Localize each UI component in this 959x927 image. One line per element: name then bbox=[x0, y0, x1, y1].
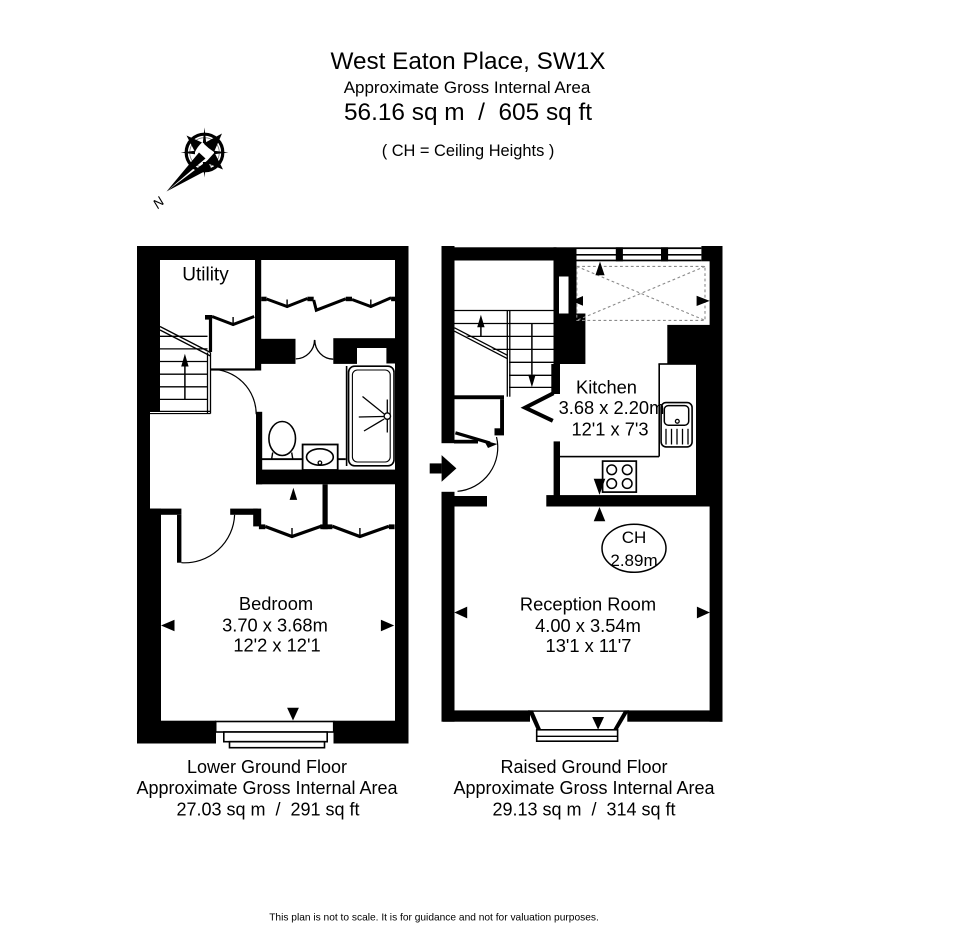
svg-text:3.68 x 2.20m: 3.68 x 2.20m bbox=[559, 397, 665, 418]
svg-text:29.13 sq m / 314 sq ft: 29.13 sq m / 314 sq ft bbox=[492, 800, 675, 820]
svg-text:Approximate Gross Internal Are: Approximate Gross Internal Area bbox=[344, 78, 591, 97]
svg-text:12'2 x 12'1: 12'2 x 12'1 bbox=[233, 635, 320, 656]
svg-text:CH: CH bbox=[622, 528, 647, 547]
svg-text:4.00 x 3.54m: 4.00 x 3.54m bbox=[535, 615, 641, 636]
svg-text:Kitchen: Kitchen bbox=[576, 377, 637, 398]
svg-text:12'1 x 7'3: 12'1 x 7'3 bbox=[571, 419, 648, 440]
svg-text:Approximate Gross Internal Are: Approximate Gross Internal Area bbox=[136, 778, 398, 798]
svg-text:Approximate Gross Internal Are: Approximate Gross Internal Area bbox=[453, 778, 715, 798]
svg-text:27.03 sq m / 291 sq ft: 27.03 sq m / 291 sq ft bbox=[176, 800, 359, 820]
svg-text:2.89m: 2.89m bbox=[610, 551, 657, 570]
svg-text:Raised Ground Floor: Raised Ground Floor bbox=[500, 757, 667, 777]
svg-text:This plan is not to scale. It: This plan is not to scale. It is for gui… bbox=[269, 913, 599, 924]
svg-text:West Eaton Place, SW1X: West Eaton Place, SW1X bbox=[330, 48, 605, 75]
svg-text:Bedroom: Bedroom bbox=[239, 593, 313, 614]
svg-text:56.16 sq m / 605 sq ft: 56.16 sq m / 605 sq ft bbox=[344, 99, 592, 126]
svg-text:3.70 x 3.68m: 3.70 x 3.68m bbox=[222, 615, 328, 636]
svg-text:Utility: Utility bbox=[182, 265, 229, 286]
svg-text:13'1 x 11'7: 13'1 x 11'7 bbox=[546, 635, 632, 656]
svg-text:Reception Room: Reception Room bbox=[520, 594, 656, 615]
svg-text:Lower Ground Floor: Lower Ground Floor bbox=[187, 757, 347, 777]
svg-text:( CH = Ceiling Heights ): ( CH = Ceiling Heights ) bbox=[382, 142, 555, 160]
